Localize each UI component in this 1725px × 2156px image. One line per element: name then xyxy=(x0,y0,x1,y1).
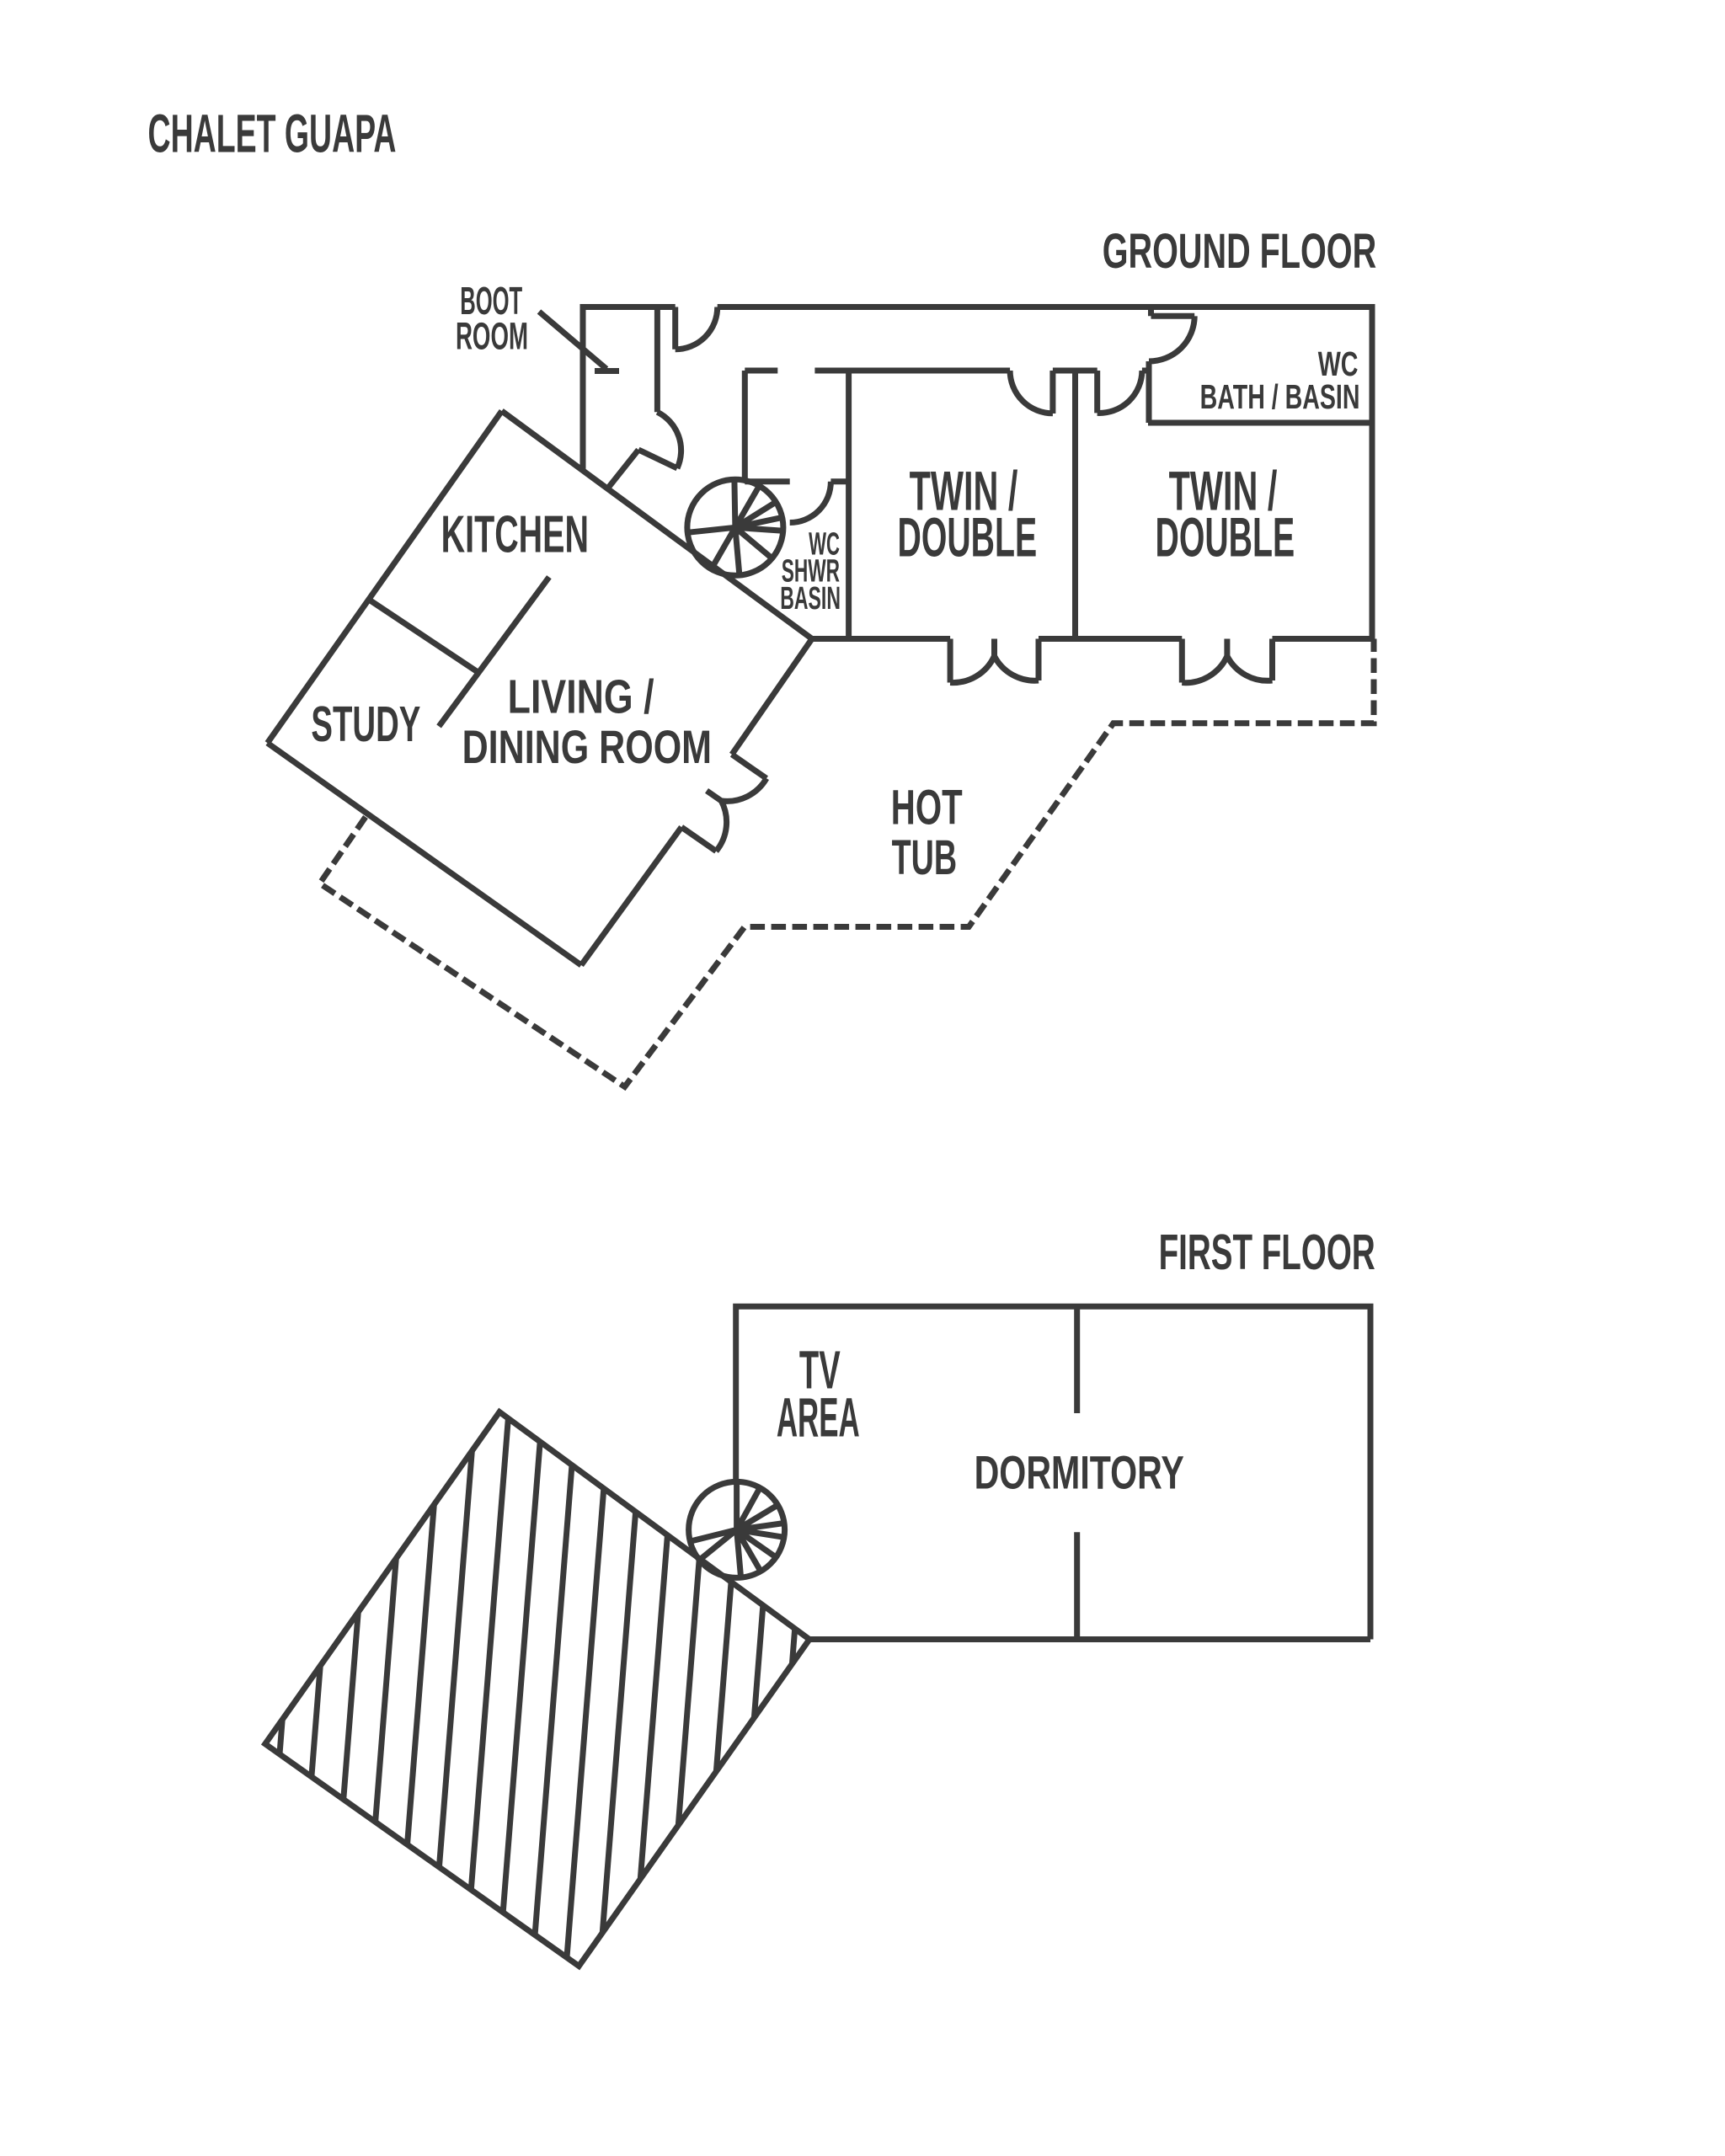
svg-text:STUDY: STUDY xyxy=(311,696,420,752)
svg-text:HOT: HOT xyxy=(891,780,963,835)
svg-text:KITCHEN: KITCHEN xyxy=(441,505,589,563)
svg-text:BASIN: BASIN xyxy=(780,579,841,616)
svg-text:DOUBLE: DOUBLE xyxy=(1155,506,1295,568)
svg-text:DOUBLE: DOUBLE xyxy=(897,506,1037,568)
svg-text:BATH / BASIN: BATH / BASIN xyxy=(1200,378,1360,416)
svg-text:FIRST FLOOR: FIRST FLOOR xyxy=(1159,1225,1375,1280)
svg-text:TUB: TUB xyxy=(892,831,957,885)
svg-text:CHALET GUAPA: CHALET GUAPA xyxy=(148,104,397,164)
svg-text:ROOM: ROOM xyxy=(456,314,528,357)
svg-text:LIVING /: LIVING / xyxy=(508,670,654,723)
svg-text:AREA: AREA xyxy=(777,1387,860,1449)
svg-text:GROUND FLOOR: GROUND FLOOR xyxy=(1103,223,1376,278)
svg-text:DINING ROOM: DINING ROOM xyxy=(462,722,712,773)
svg-text:DORMITORY: DORMITORY xyxy=(975,1447,1184,1498)
